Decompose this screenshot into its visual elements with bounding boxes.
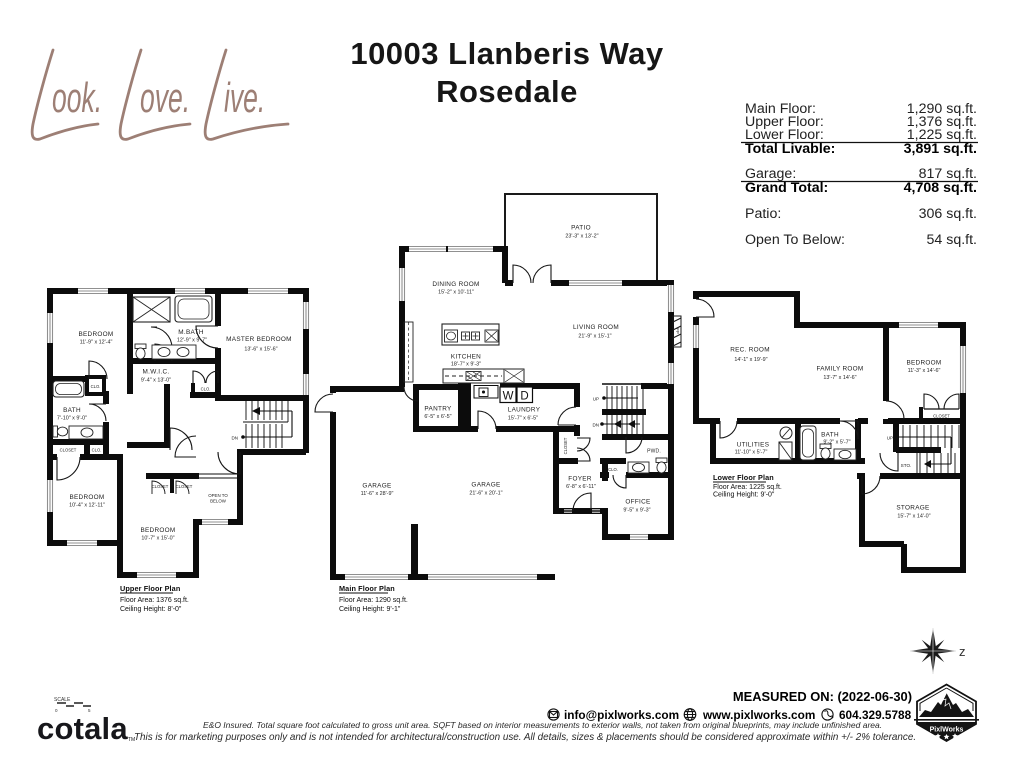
svg-text:MEASURED ON: (2022-06-30): MEASURED ON: (2022-06-30) (733, 689, 912, 704)
svg-text:18'-7" x 9'-3": 18'-7" x 9'-3" (451, 362, 481, 368)
svg-text:Ceiling Height: 9'-1": Ceiling Height: 9'-1" (339, 606, 401, 613)
svg-text:CLOSET: CLOSET (933, 414, 950, 419)
svg-text:CLO.: CLO. (201, 387, 211, 392)
svg-text:UTILITIES: UTILITIES (737, 442, 770, 449)
svg-text:ove.: ove. (140, 75, 190, 121)
svg-text:15'-2" x 10'-11": 15'-2" x 10'-11" (438, 290, 474, 296)
svg-text:ook.: ook. (52, 75, 102, 121)
svg-text:21'-9" x 15'-1": 21'-9" x 15'-1" (578, 334, 611, 340)
svg-text:GARAGE: GARAGE (471, 482, 500, 489)
svg-text:z: z (959, 644, 966, 659)
svg-text:DN: DN (593, 423, 600, 428)
svg-text:BEDROOM: BEDROOM (78, 331, 113, 338)
svg-text:OPEN TO: OPEN TO (208, 493, 228, 498)
svg-text:BEDROOM: BEDROOM (906, 360, 941, 367)
svg-text:9'-4" x 13'-0": 9'-4" x 13'-0" (141, 378, 171, 384)
svg-text:Total Livable:: Total Livable: (745, 141, 835, 157)
svg-text:LIVING ROOM: LIVING ROOM (573, 324, 619, 331)
svg-text:Main Floor Plan: Main Floor Plan (339, 584, 395, 593)
svg-text:14'-1" x 19'-9": 14'-1" x 19'-9" (734, 357, 767, 363)
svg-text:Grand Total:: Grand Total: (745, 180, 828, 196)
svg-text:LAUNDRY: LAUNDRY (508, 407, 541, 414)
svg-text:M.W.I.C.: M.W.I.C. (143, 369, 170, 376)
svg-text:PixlWorks: PixlWorks (930, 727, 964, 734)
svg-text:UP: UP (593, 397, 599, 402)
svg-text:Patio:: Patio: (745, 206, 781, 222)
svg-text:Floor Area: 1290 sq.ft.: Floor Area: 1290 sq.ft. (339, 597, 408, 604)
svg-text:REC. ROOM: REC. ROOM (730, 347, 770, 354)
svg-text:DINING ROOM: DINING ROOM (432, 281, 479, 288)
svg-text:CLOSET: CLOSET (60, 448, 77, 453)
svg-text:KITCHEN: KITCHEN (451, 354, 481, 361)
svg-text:11'-3" x 14'-6": 11'-3" x 14'-6" (908, 368, 941, 374)
svg-text:Upper Floor Plan: Upper Floor Plan (120, 584, 180, 593)
svg-text:OFFICE: OFFICE (625, 499, 650, 506)
svg-text:CLO.: CLO. (92, 448, 102, 453)
svg-text:3,891 sq.ft.: 3,891 sq.ft. (904, 141, 977, 157)
svg-text:11'-10" x 5'-7": 11'-10" x 5'-7" (735, 450, 768, 456)
svg-text:PATIO: PATIO (571, 225, 591, 232)
svg-text:Open To Below:: Open To Below: (745, 232, 845, 248)
svg-text:9'-2" x 5'-7": 9'-2" x 5'-7" (823, 440, 850, 446)
svg-text:E&O Insured. Total square foo: E&O Insured. Total square foot calculate… (203, 720, 882, 730)
svg-text:15'-7" x 14'-0": 15'-7" x 14'-0" (897, 514, 930, 520)
svg-text:10'-7" x 15'-0": 10'-7" x 15'-0" (141, 536, 174, 542)
svg-text:Ceiling Height: 8'-0": Ceiling Height: 8'-0" (120, 606, 182, 613)
svg-text:BELOW: BELOW (210, 499, 227, 504)
svg-text:CLOSET: CLOSET (176, 484, 193, 489)
svg-text:UP: UP (887, 436, 893, 441)
svg-text:MASTER BEDROOM: MASTER BEDROOM (226, 336, 292, 343)
svg-text:FAMILY ROOM: FAMILY ROOM (816, 366, 863, 373)
svg-text:6'-5" x 6'-5": 6'-5" x 6'-5" (424, 414, 451, 420)
svg-text:Lower Floor Plan: Lower Floor Plan (713, 473, 774, 482)
svg-text:11'-6" x 28'-9": 11'-6" x 28'-9" (361, 491, 394, 497)
svg-text:cotala: cotala (37, 711, 128, 746)
svg-text:11'-9" x 12'-4": 11'-9" x 12'-4" (80, 340, 113, 346)
svg-text:PANTRY: PANTRY (424, 406, 452, 413)
svg-text:10003 Llanberis Way: 10003 Llanberis Way (350, 36, 664, 71)
svg-text:CLO.: CLO. (608, 467, 618, 472)
svg-text:7'-10" x 9'-0": 7'-10" x 9'-0" (57, 416, 87, 422)
svg-text:SCALE: SCALE (54, 697, 71, 703)
svg-text:W: W (503, 391, 514, 403)
svg-text:FOYER: FOYER (568, 476, 592, 483)
svg-text:12'-9" x 9'-7": 12'-9" x 9'-7" (177, 338, 207, 344)
svg-text:306 sq.ft.: 306 sq.ft. (919, 206, 977, 222)
svg-text:STO.: STO. (901, 463, 912, 468)
svg-text:21'-6" x 20'-1": 21'-6" x 20'-1" (469, 491, 502, 497)
svg-text:9'-5" x 9'-3": 9'-5" x 9'-3" (623, 508, 650, 514)
svg-text:Floor Area: 1376 sq.ft.: Floor Area: 1376 sq.ft. (120, 597, 189, 604)
svg-text:CLOSET: CLOSET (152, 484, 169, 489)
svg-text:BEDROOM: BEDROOM (140, 527, 175, 534)
svg-text:M.BATH: M.BATH (178, 329, 204, 336)
svg-text:CLOSET: CLOSET (563, 437, 568, 454)
svg-text:BATH: BATH (63, 407, 81, 414)
svg-text:54 sq.ft.: 54 sq.ft. (927, 232, 977, 248)
svg-text:15'-7" x 6'-5": 15'-7" x 6'-5" (508, 416, 538, 422)
svg-text:Ceiling Height: 9'-0": Ceiling Height: 9'-0" (713, 492, 775, 499)
svg-text:BATH: BATH (821, 432, 839, 439)
svg-text:23'-3" x 13'-2": 23'-3" x 13'-2" (565, 234, 598, 240)
svg-text:DN: DN (232, 436, 239, 441)
svg-text:ive.: ive. (224, 75, 265, 121)
svg-text:PWD.: PWD. (647, 449, 661, 455)
svg-text:13'-6" x 15'-6": 13'-6" x 15'-6" (244, 347, 277, 353)
svg-text:10'-4" x 12'-11": 10'-4" x 12'-11" (69, 503, 105, 509)
svg-text:6'-8" x 6'-11": 6'-8" x 6'-11" (566, 484, 596, 490)
svg-text:CLO.: CLO. (91, 384, 101, 389)
svg-text:4,708 sq.ft.: 4,708 sq.ft. (904, 180, 977, 196)
svg-text:FP: FP (675, 328, 680, 334)
svg-text:Rosedale: Rosedale (436, 74, 578, 109)
svg-text:GARAGE: GARAGE (362, 483, 391, 490)
svg-text:BEDROOM: BEDROOM (69, 494, 104, 501)
svg-text:STORAGE: STORAGE (896, 505, 929, 512)
svg-text:Floor Area: 1225 sq.ft.: Floor Area: 1225 sq.ft. (713, 484, 782, 491)
svg-text:D: D (520, 391, 528, 403)
svg-text:13'-7" x 14'-6": 13'-7" x 14'-6" (823, 375, 856, 381)
svg-text:This is for marketing purposes: This is for marketing purposes only and … (134, 732, 916, 743)
